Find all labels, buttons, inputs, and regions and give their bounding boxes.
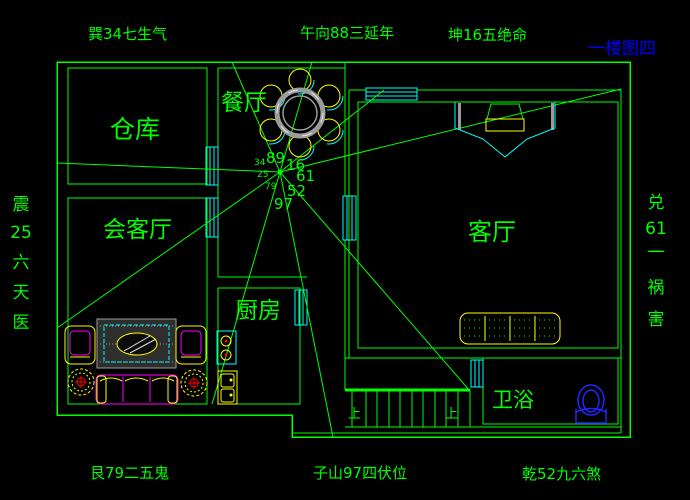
room-labels: 仓库 会客厅 餐厅 厨房 客厅 卫浴 上 上 — [103, 90, 534, 422]
dining-table-set — [257, 66, 343, 160]
room-label-kitchen: 厨房 — [235, 298, 281, 324]
compass-center-point — [278, 170, 283, 175]
annotation-right-1: 兑 — [648, 193, 665, 213]
annotation-left-3: 六 — [13, 253, 30, 273]
stove-icon — [217, 331, 236, 364]
annotation-top-right: 坤16五绝命 — [448, 26, 527, 44]
annotation-bottom-left: 艮79二五鬼 — [90, 464, 169, 482]
compass-number-sw-small: 79 — [265, 182, 277, 192]
tv-cabinet — [455, 102, 555, 157]
annotation-right-4: 祸 — [648, 278, 665, 298]
toilet-icon — [576, 385, 606, 423]
annotation-left-2: 25 — [10, 223, 32, 243]
room-label-living: 客厅 — [468, 218, 516, 246]
annotation-left-5: 医 — [13, 313, 30, 333]
stairs-up-label-right: 上 — [445, 407, 458, 422]
compass-number-w-small: 25 — [257, 170, 268, 180]
compass-number-n: 89 — [266, 149, 285, 167]
annotation-top-left: 巽34七生气 — [88, 25, 167, 43]
door-storage-east — [206, 147, 218, 185]
room-label-storage: 仓库 — [110, 115, 160, 144]
annotation-bottom-right: 乾52九六煞 — [522, 465, 601, 483]
plant-left — [68, 369, 94, 395]
door-bathroom-west — [471, 360, 483, 387]
room-label-bathroom: 卫浴 — [492, 388, 534, 412]
armchair-left — [65, 326, 95, 364]
living-room-sofa — [460, 313, 560, 344]
annotation-left-4: 天 — [13, 283, 30, 303]
rug-and-coffee-table — [97, 319, 176, 368]
door-reception-east — [206, 198, 218, 237]
cad-floorplan-canvas: 巽34七生气 午向88三延年 坤16五绝命 一楼图四 艮79二五鬼 子山97四伏… — [0, 0, 690, 500]
niche-side-left — [458, 103, 461, 130]
niche-side-right — [551, 103, 554, 130]
compass-number-nw-small: 34 — [254, 158, 266, 168]
reception-sofa — [96, 375, 178, 404]
annotation-left-1: 震 — [13, 195, 30, 215]
room-label-reception: 会客厅 — [103, 217, 172, 243]
sink-icon — [218, 371, 237, 404]
annotation-right-2: 61 — [645, 219, 667, 239]
room-label-dining: 餐厅 — [221, 90, 267, 116]
annotation-bottom-center: 子山97四伏位 — [313, 464, 407, 482]
annotation-right-5: 害 — [648, 310, 665, 330]
armchair-right — [176, 326, 206, 364]
sheet-label: 一楼图四 — [588, 39, 656, 59]
door-kitchen-east — [295, 290, 307, 325]
compass-number-s: 97 — [274, 195, 293, 213]
stairs-up-label-left: 上 — [348, 407, 361, 422]
annotation-top-center: 午向88三延年 — [300, 24, 394, 42]
annotation-right-3: 一 — [648, 243, 665, 263]
annotations: 巽34七生气 午向88三延年 坤16五绝命 一楼图四 艮79二五鬼 子山97四伏… — [10, 24, 667, 483]
plant-right — [181, 370, 207, 396]
